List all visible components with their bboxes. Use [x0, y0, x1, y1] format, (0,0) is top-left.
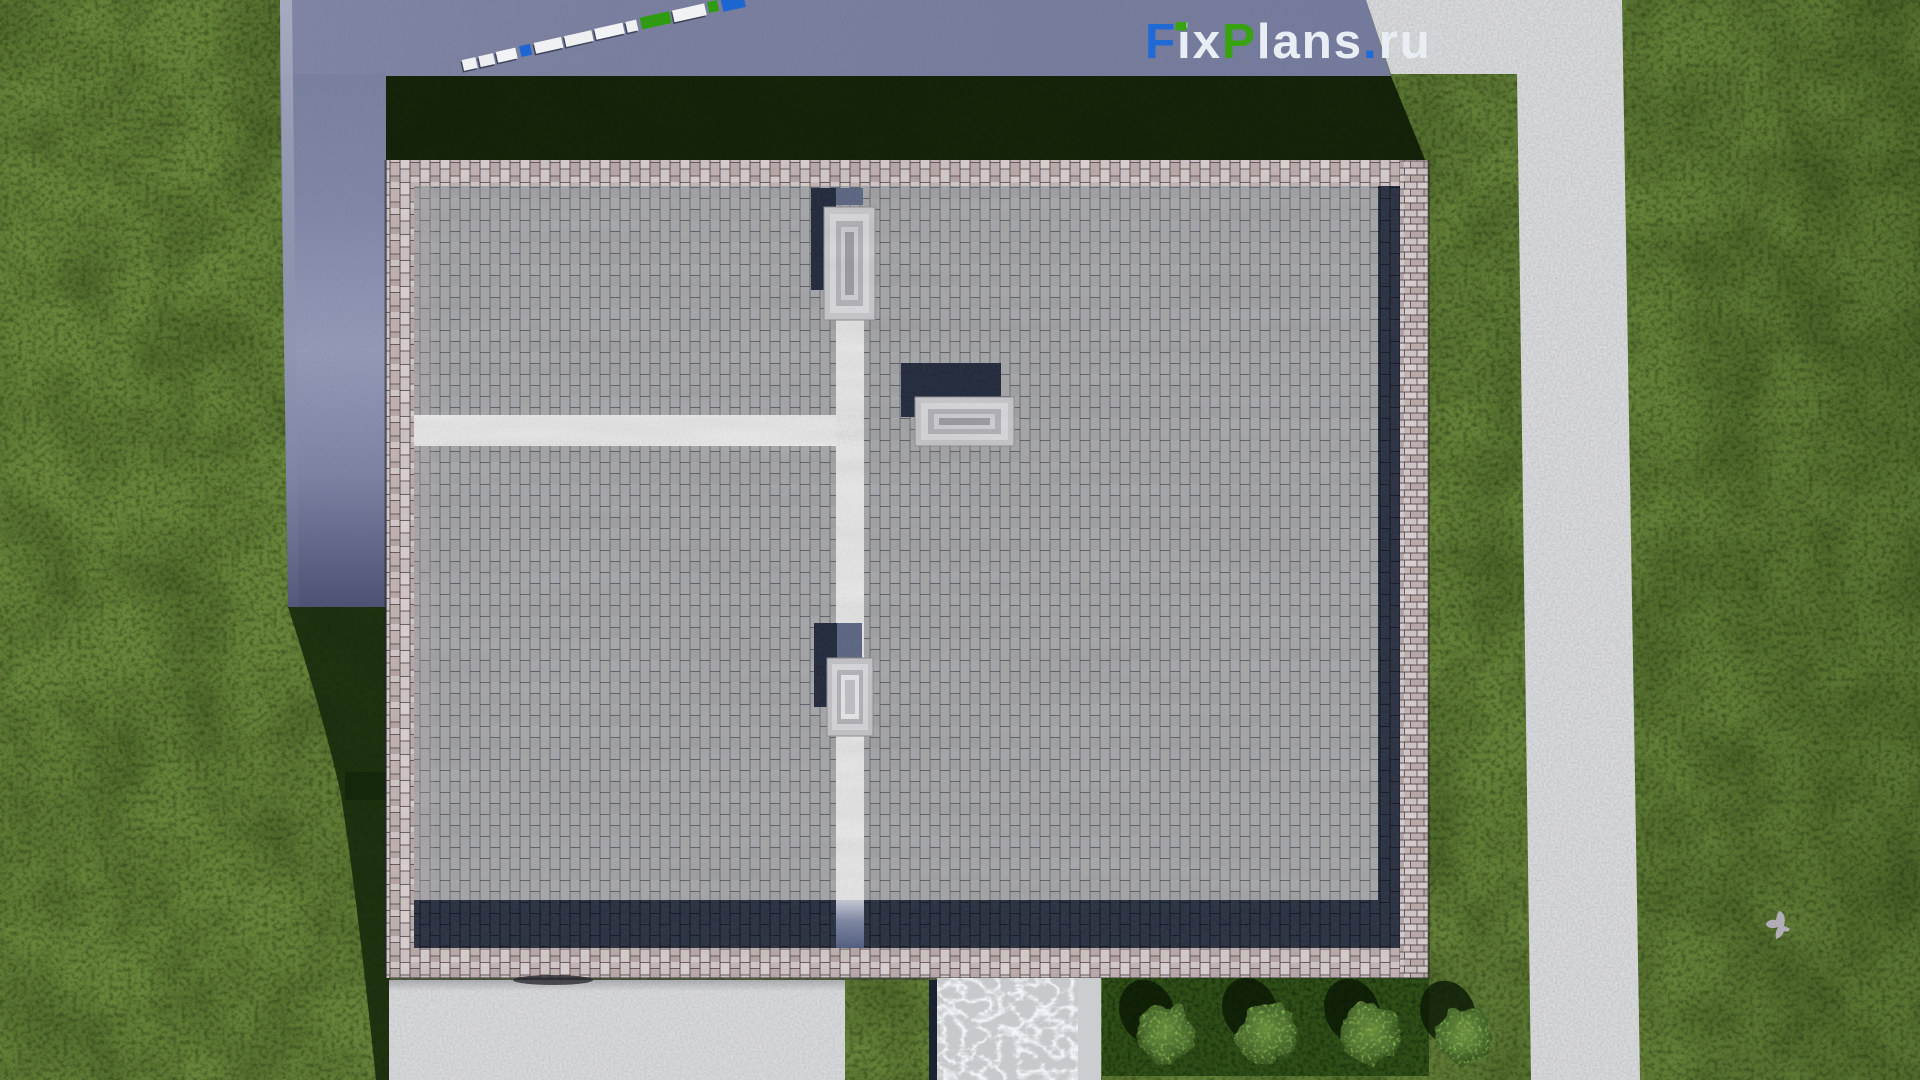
svg-text:FixPlans.ru: FixPlans.ru	[1145, 14, 1432, 69]
